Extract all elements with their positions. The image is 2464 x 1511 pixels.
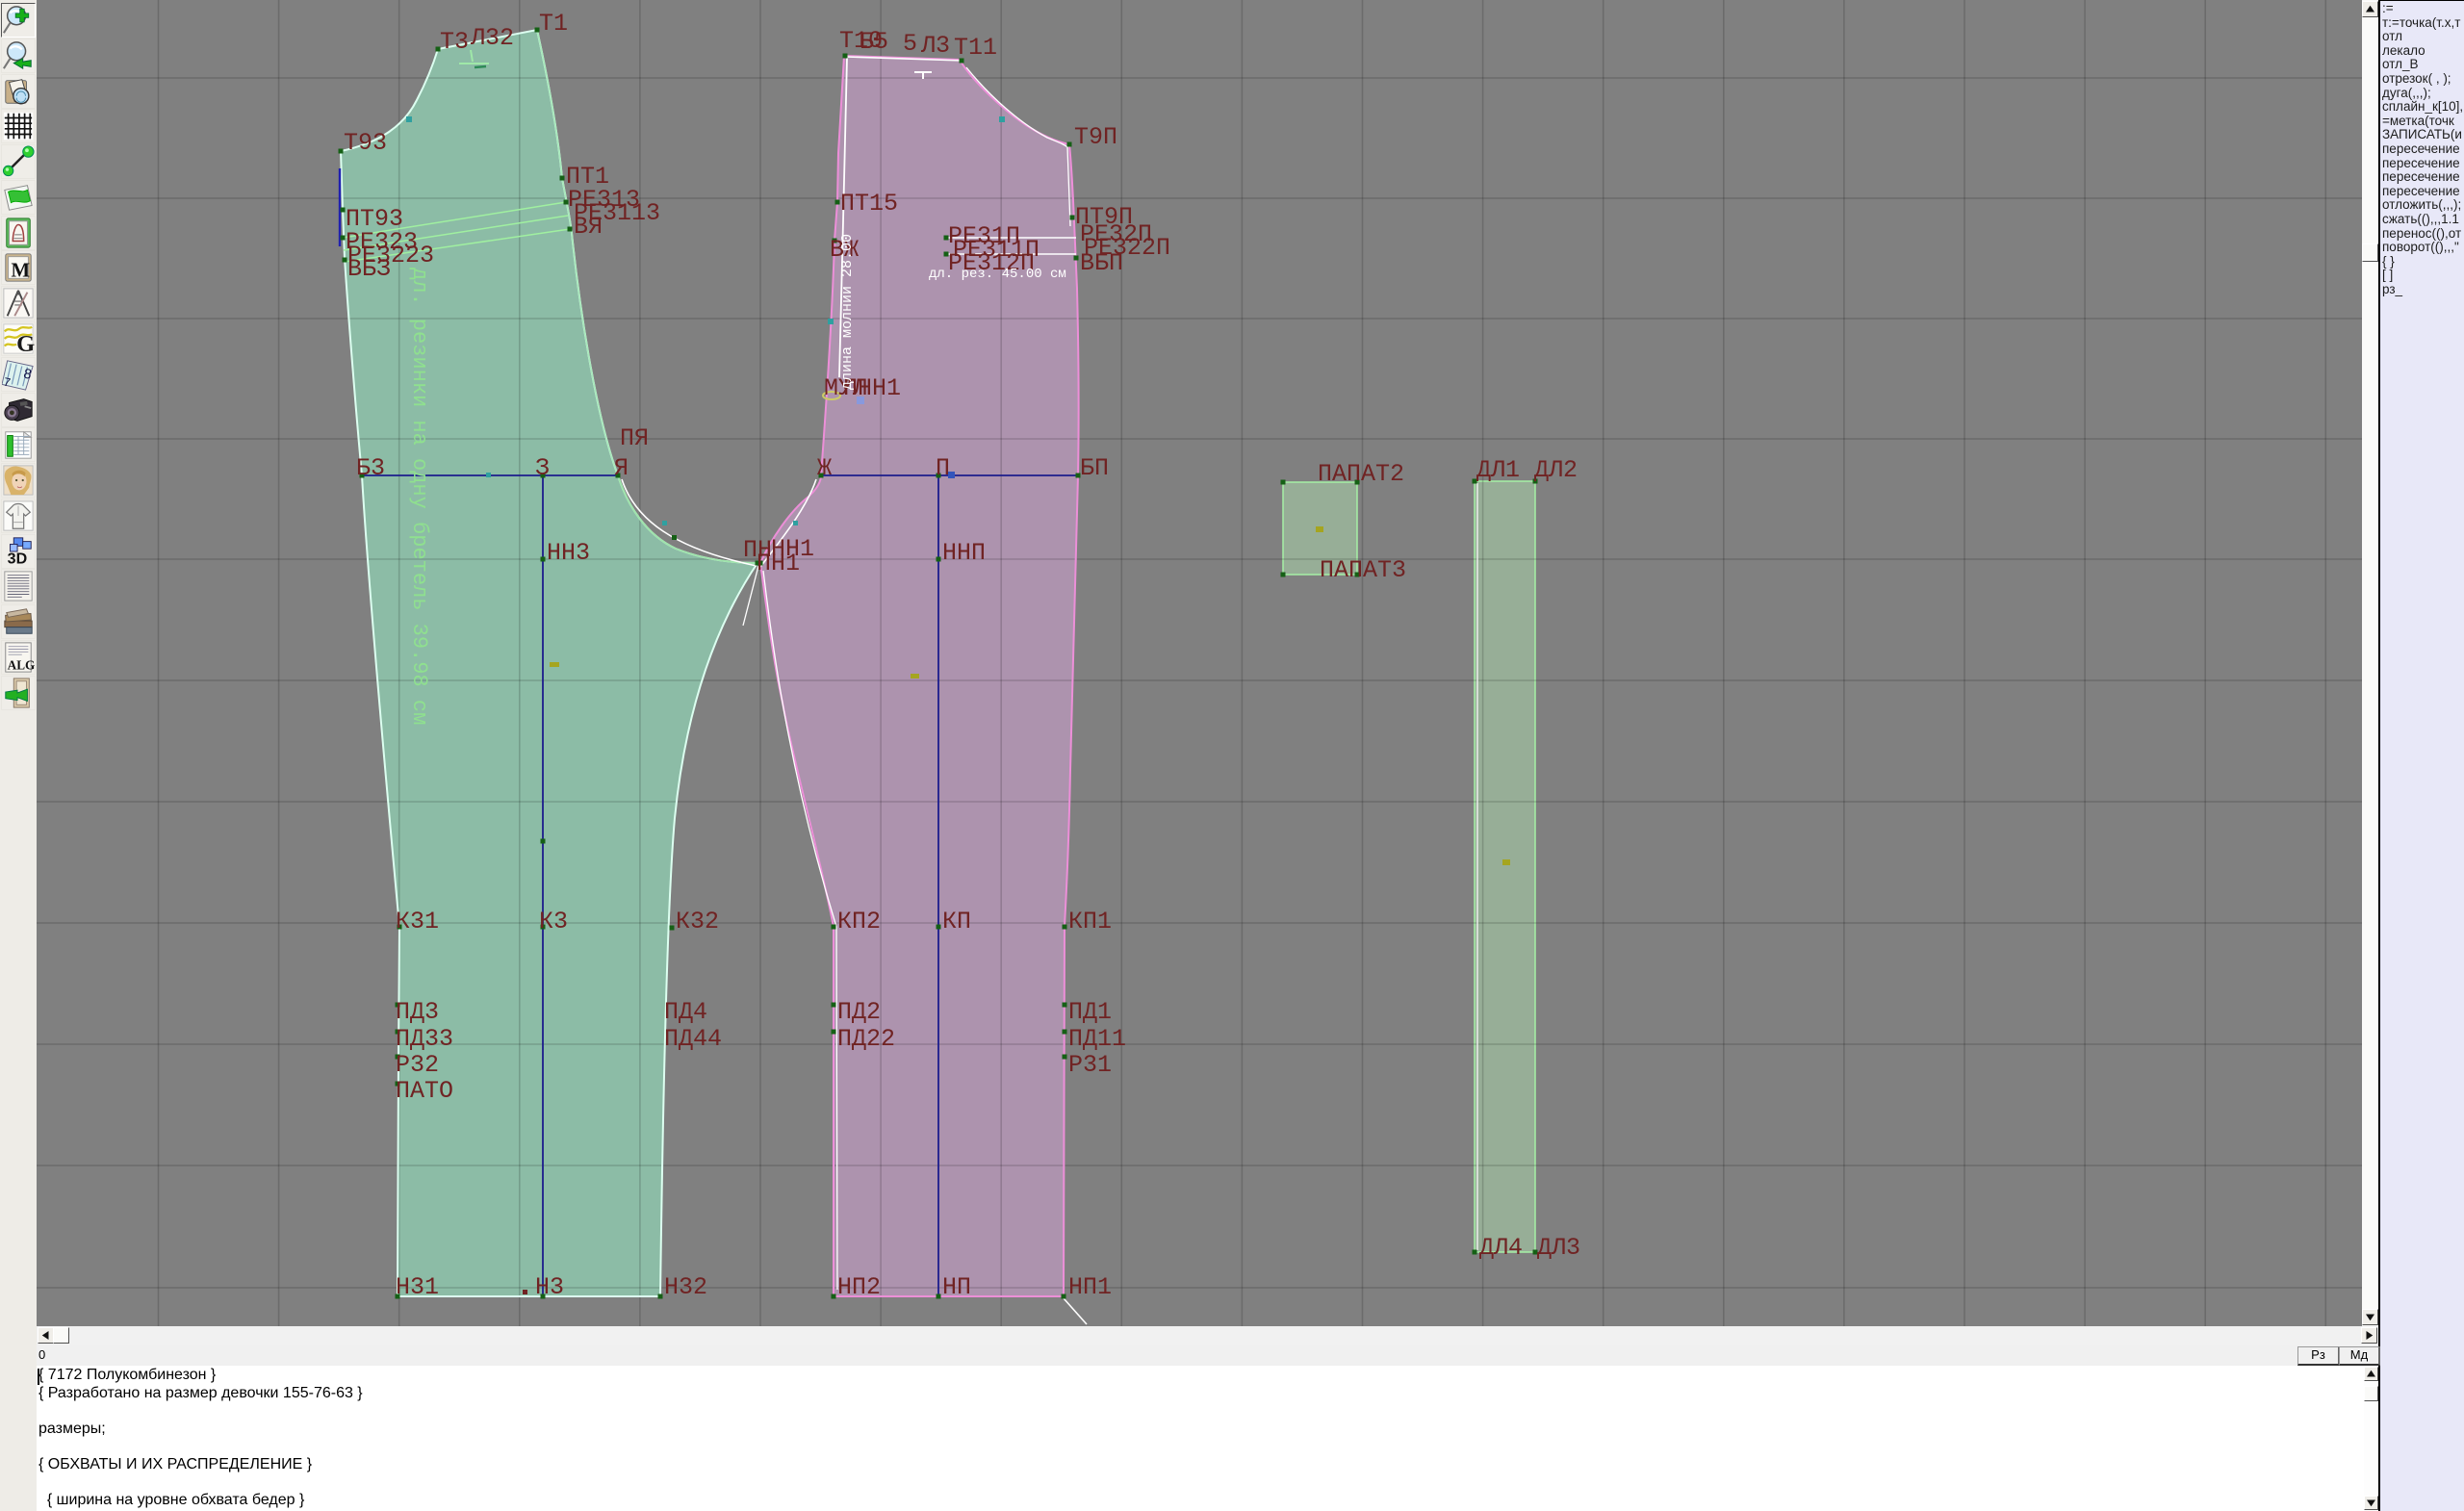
svg-text:К32: К32	[676, 908, 719, 935]
svg-text:Б3: Б3	[356, 454, 385, 482]
svg-text:Т93: Т93	[344, 129, 387, 157]
svg-text:Н31: Н31	[396, 1273, 439, 1301]
svg-text:ННП: ННП	[942, 539, 986, 567]
svg-text:НП: НП	[942, 1273, 971, 1301]
svg-text:ВЯ: ВЯ	[574, 213, 603, 241]
svg-text:ПТ15: ПТ15	[840, 190, 898, 218]
svg-text:дл. резинки на одну бретель 39: дл. резинки на одну бретель 39.98 см	[407, 268, 431, 725]
svg-text:Н32: Н32	[664, 1273, 707, 1301]
svg-text:Ж: Ж	[817, 454, 832, 482]
svg-text:ПАТО: ПАТО	[396, 1077, 453, 1105]
svg-text:Т9П: Т9П	[1074, 123, 1117, 151]
svg-text:ПД44: ПД44	[664, 1025, 722, 1053]
svg-text:КП: КП	[942, 908, 971, 935]
svg-text:ПД2: ПД2	[837, 998, 881, 1026]
svg-text:К3: К3	[539, 908, 568, 935]
svg-text:ПАПАТ3: ПАПАТ3	[1320, 556, 1406, 584]
svg-text:З: З	[535, 454, 550, 482]
svg-text:ПД1: ПД1	[1068, 998, 1112, 1026]
svg-text:ПД22: ПД22	[837, 1025, 895, 1053]
svg-text:5: 5	[903, 30, 917, 58]
svg-text:НН3: НН3	[547, 539, 590, 567]
svg-text:ПЯ: ПЯ	[620, 424, 649, 452]
svg-text:КП1: КП1	[1068, 908, 1112, 935]
svg-text:Т3: Т3	[440, 28, 469, 56]
svg-text:НП2: НП2	[837, 1273, 881, 1301]
svg-text:П: П	[936, 454, 950, 482]
svg-text:КП2: КП2	[837, 908, 881, 935]
svg-text:длина молнии 28.00: длина молнии 28.00	[839, 234, 856, 390]
svg-text:К31: К31	[396, 908, 439, 935]
svg-text:БП: БП	[1080, 454, 1109, 482]
svg-text:Т1: Т1	[539, 10, 568, 38]
svg-text:ВБЗ: ВБЗ	[347, 255, 391, 283]
svg-text:ПАПАТ2: ПАПАТ2	[1318, 460, 1404, 488]
svg-text:Б5: Б5	[860, 28, 888, 56]
svg-text:Я: Я	[614, 454, 629, 482]
svg-text:ПН1: ПН1	[757, 550, 800, 577]
svg-text:дл. рез. 45.00 см: дл. рез. 45.00 см	[929, 267, 1066, 282]
svg-text:3D: 3D	[8, 550, 28, 567]
svg-text:ДЛ1 ДЛ2: ДЛ1 ДЛ2	[1476, 456, 1578, 484]
svg-text:M: M	[11, 259, 30, 281]
svg-text:Т11: Т11	[954, 34, 997, 62]
svg-text:ПД33: ПД33	[396, 1025, 453, 1053]
svg-text:ALG: ALG	[8, 657, 35, 672]
svg-text:ПД4: ПД4	[664, 998, 707, 1026]
svg-text:ПД3: ПД3	[396, 998, 439, 1026]
svg-text:Л3: Л3	[920, 32, 950, 60]
svg-text:Н3: Н3	[535, 1273, 564, 1301]
svg-text:Р32: Р32	[396, 1051, 439, 1079]
svg-text:G: G	[16, 331, 35, 355]
svg-text:НП1: НП1	[1068, 1273, 1112, 1301]
svg-text:Л32: Л32	[470, 24, 514, 52]
svg-text:ПД11: ПД11	[1068, 1025, 1126, 1053]
svg-text:ВБП: ВБП	[1080, 249, 1123, 277]
svg-text:Р31: Р31	[1068, 1051, 1112, 1079]
svg-text:ДЛ4 ДЛ3: ДЛ4 ДЛ3	[1479, 1234, 1580, 1262]
